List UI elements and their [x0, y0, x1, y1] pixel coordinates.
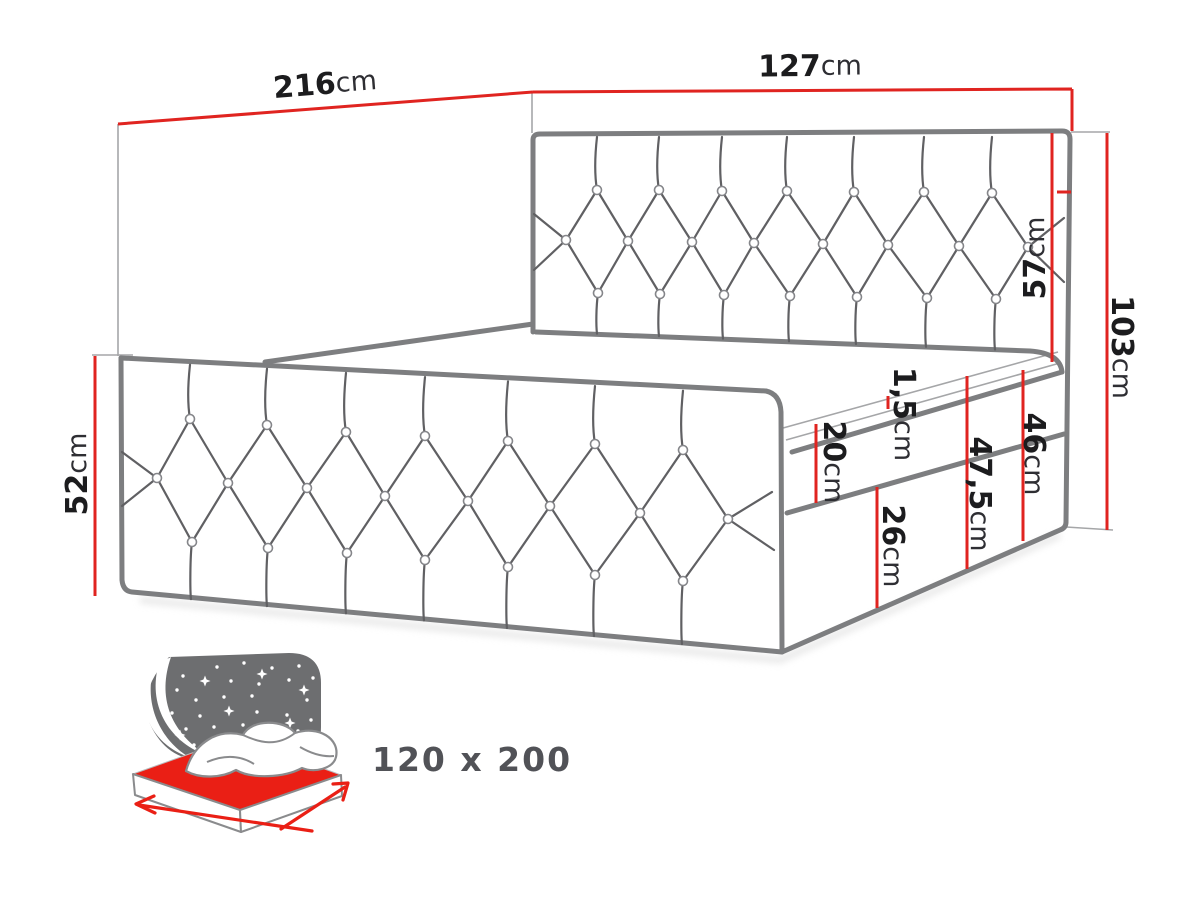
dimension-label-base-height: 26cm: [876, 505, 911, 588]
dimension-mattress-thickness: 20cm: [816, 421, 852, 504]
bed-technical-drawing: 216cm127cm57cm103cm52cm1,5cm20cm47,5cm46…: [0, 0, 1200, 900]
dimension-label-headboard-above-mattress: 57cm: [1018, 217, 1053, 300]
dimension-label-headboard-width: 127cm: [758, 48, 862, 84]
dimension-label-mattress-with-base: 47,5cm: [963, 436, 998, 551]
bed-shadow: [140, 535, 1060, 660]
dimension-base-height: 26cm: [876, 487, 911, 608]
dimension-headboard-above-mattress: 57cm: [1018, 133, 1053, 362]
size-icon: [133, 653, 348, 832]
dimension-label-side-height: 52cm: [60, 433, 95, 516]
dimension-topper-thickness: 1,5cm: [887, 367, 922, 461]
dimension-mattress-with-base: 47,5cm: [963, 376, 998, 569]
dimension-label-topper-thickness: 1,5cm: [887, 367, 922, 461]
dimension-headboard-width: 127cm: [533, 48, 1072, 131]
dimension-total-height: 103cm: [1105, 133, 1140, 530]
headboard-tufting: [534, 137, 1064, 350]
dimension-label-mattress-thickness: 20cm: [817, 421, 852, 504]
dimension-label-total-height: 103cm: [1105, 295, 1140, 399]
dimension-label-total-length: 216cm: [272, 63, 378, 106]
bed-dimension-diagram: 216cm127cm57cm103cm52cm1,5cm20cm47,5cm46…: [0, 0, 1200, 900]
dimension-base-with-mattress: 46cm: [1017, 370, 1052, 541]
size-badge: 120 x 200: [372, 740, 542, 779]
dimension-total-length: 216cm: [118, 63, 533, 124]
dimension-side-height: 52cm: [60, 356, 96, 596]
dimension-label-base-with-mattress: 46cm: [1017, 413, 1052, 496]
